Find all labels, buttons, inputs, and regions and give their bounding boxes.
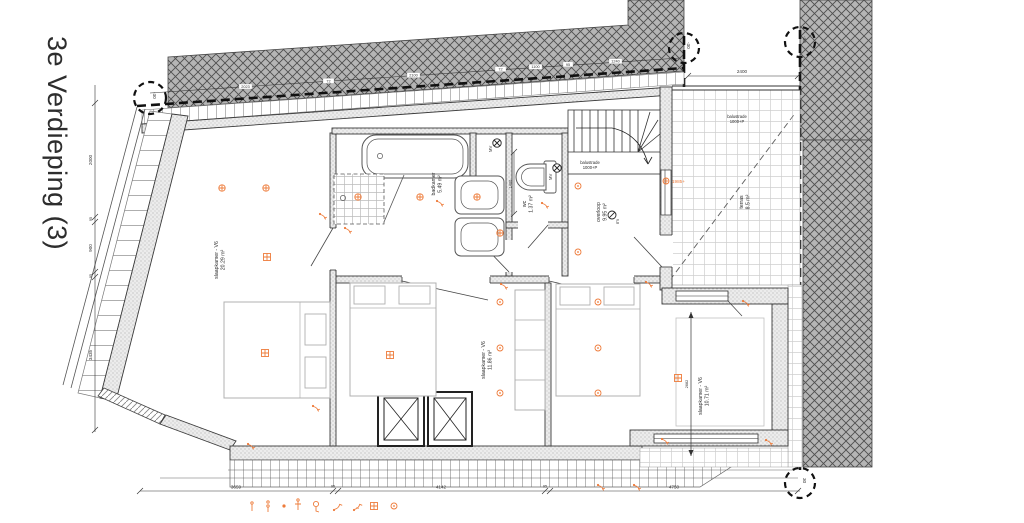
left-dim-2: 900 (88, 244, 93, 252)
south-wall (230, 446, 642, 460)
page-title: 3e Verdieping (3) (42, 36, 72, 250)
svg-text:30: 30 (802, 478, 807, 484)
legend-spot-icon (282, 504, 285, 507)
svg-text:11.86 m²: 11.86 m² (488, 350, 494, 370)
svg-text:1000+P: 1000+P (583, 165, 598, 170)
legend-socket-icon (391, 503, 397, 509)
svg-text:-30: -30 (152, 92, 157, 99)
svg-text:9.95 m²: 9.95 m² (603, 203, 609, 221)
switch-icon (436, 200, 444, 207)
spot-icon (575, 249, 581, 255)
wc-depth-label: 1400 (509, 180, 513, 188)
bottom-dim-0: 3659 (231, 485, 242, 490)
left-dim-4: 3435 (88, 349, 93, 360)
svg-text:MV: MV (488, 146, 493, 152)
ridge-dim-2: 2100 (409, 74, 417, 78)
svg-text:slaapkamer - V6: slaapkamer - V6 (481, 341, 487, 379)
ridge-dim-3: 72 (498, 68, 502, 72)
switch-icon (500, 283, 508, 290)
washbasin-bottom (455, 218, 504, 256)
light-point-icon (497, 230, 503, 236)
switch-icon (344, 227, 352, 234)
wardrobe-bedroom2 (515, 290, 545, 410)
left-dim-0: 2000 (88, 154, 93, 165)
terras-balustrade (672, 86, 800, 90)
legend-row (251, 499, 397, 512)
legend-floor-heating-icon (371, 503, 378, 510)
switch-icon (312, 405, 320, 412)
svg-text:slaapkamer - V6: slaapkamer - V6 (698, 377, 704, 415)
floor-heating-icon (264, 254, 271, 261)
bottom-dim-3: 95 (543, 485, 547, 489)
svg-text:rm: rm (615, 219, 620, 224)
ridge-dim-5: 95 (566, 63, 570, 67)
legend-double-switch-icon (353, 504, 362, 511)
bedroom3-height-label: 2682 (685, 380, 689, 388)
spot-icon (575, 183, 581, 189)
light-point-icon (263, 185, 269, 191)
ridge-dim-0: 2023 (241, 85, 249, 89)
smoke-detector-icon (608, 211, 616, 219)
svg-text:10.71 m²: 10.71 m² (705, 385, 711, 406)
ventilation-icon (553, 164, 561, 172)
bed-bedroom2 (350, 283, 436, 396)
bedroom1-label: slaapkamer - V6 20.29 m² (214, 241, 227, 279)
bathtub (362, 135, 468, 178)
ridge-dim-1: 72 (326, 79, 330, 83)
bed-bedroom1 (224, 302, 330, 398)
terras-width-label: 2400 (737, 69, 748, 74)
bed-bedroom3 (556, 284, 640, 396)
wc-east-wall (562, 133, 568, 276)
level-marker-bottom-right: 30 (785, 468, 815, 498)
light-point-icon (474, 194, 480, 200)
svg-text:badkamer: badkamer (431, 172, 437, 195)
floorplan-page: 2023 72 2100 72 1100 95 1240 (0, 0, 1024, 523)
southwest-wall (160, 415, 236, 450)
bedroom3-floor-outline (676, 318, 764, 426)
smoke-detector: rm (608, 211, 620, 224)
bedroom1-east-wall (311, 133, 337, 446)
svg-text:wc: wc (522, 200, 528, 207)
floorplan-drawing: 2023 72 2100 72 1100 95 1240 (0, 0, 1024, 523)
svg-text:-30: -30 (802, 36, 807, 43)
left-dim-1: 95 (89, 217, 93, 221)
bedroom-partition-wall (545, 283, 551, 446)
roof-window-left (378, 392, 424, 446)
bedroom2-label: slaapkamer - V6 11.86 m² (481, 341, 494, 379)
svg-text:8.5 m²: 8.5 m² (746, 194, 752, 209)
terras-label: terras 8.5 m² (739, 194, 752, 209)
wc-label: wc 1.37 m² (522, 195, 535, 213)
roof-window-right (428, 392, 472, 446)
svg-text:1000+P: 1000+P (730, 119, 745, 124)
bottom-dim-2: 4142 (436, 485, 447, 490)
terras-strip-east (788, 285, 802, 467)
svg-text:20.29 m²: 20.29 m² (221, 249, 227, 270)
tub-partition-wall (470, 133, 476, 178)
legend-ceiling-light-icon (251, 502, 253, 511)
wc-south-wall (506, 221, 568, 248)
floor-heating-icon (675, 375, 682, 382)
terras-strip-south (640, 448, 788, 467)
bathroom-north-wall (332, 128, 568, 134)
bottom-dim-1: 95 (331, 485, 335, 489)
legend-switched-light-icon (313, 501, 319, 512)
terras-width-dim: 2400 (685, 69, 801, 79)
bottom-dim-4: 4750 (669, 485, 680, 490)
roof-band-right (803, 140, 872, 467)
svg-text:terras: terras (739, 195, 745, 209)
door-leaf-6 (634, 237, 662, 267)
light-point-icon (417, 194, 423, 200)
svg-text:1985+: 1985+ (672, 179, 685, 184)
spot-icon (497, 345, 503, 351)
svg-text:overloop: overloop (596, 202, 602, 222)
bedroom3-label: slaapkamer - V6 10.71 m² (698, 377, 711, 415)
svg-text:1.37 m²: 1.37 m² (529, 195, 535, 213)
light-point-icon (219, 185, 225, 191)
ridge-dim-4: 1100 (531, 65, 539, 69)
bedroom3-south-window (654, 434, 758, 443)
ventilation-icon (493, 139, 501, 147)
level-annotation-1985: 1985+ (663, 178, 685, 184)
svg-text:-30: -30 (686, 42, 691, 49)
left-dim-3: 95 (89, 274, 93, 278)
shower (334, 174, 404, 224)
switch-icon (541, 202, 549, 209)
legend-single-switch-icon (333, 504, 342, 511)
switch-icon (319, 213, 327, 220)
legend-pendant-light-icon (267, 501, 269, 512)
light-point-icon (355, 194, 361, 200)
badkamer-label: badkamer 5.49 m² (431, 172, 444, 195)
legend-wall-light-icon (295, 499, 301, 510)
spot-icon (497, 390, 503, 396)
spot-icon (497, 299, 503, 305)
svg-text:MV: MV (548, 174, 553, 180)
svg-text:5.49 m²: 5.49 m² (438, 175, 444, 193)
roof-block-right-top (800, 0, 872, 140)
overloop-label: overloop 9.95 m² (596, 202, 609, 222)
corner-window-band (98, 388, 165, 424)
svg-text:slaapkamer - V6: slaapkamer - V6 (214, 241, 220, 279)
ridge-dim-6: 1240 (611, 60, 619, 64)
